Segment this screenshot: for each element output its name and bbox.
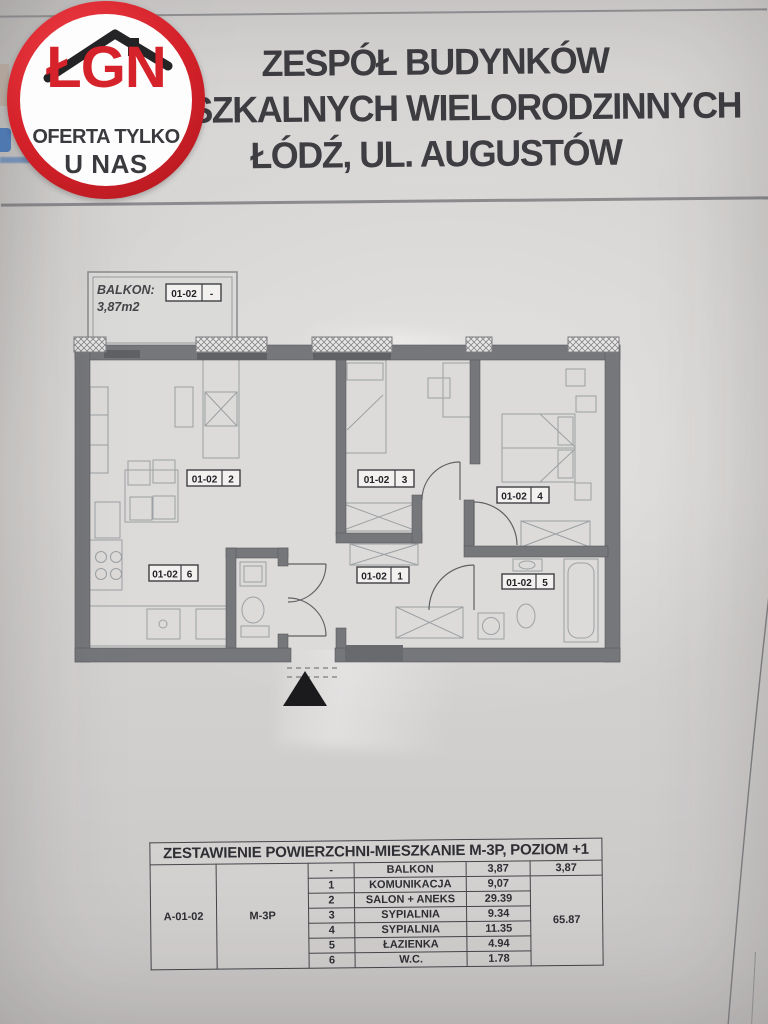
row-name: SYPIALNIA bbox=[355, 922, 467, 938]
svg-text:4: 4 bbox=[537, 492, 543, 503]
room-label-balcony: 01-02 - bbox=[166, 284, 221, 301]
balcony-total-cell: 3,87 bbox=[530, 860, 602, 876]
svg-text:01-02: 01-02 bbox=[171, 289, 197, 300]
floor-plan-drawing: BALKON: 3,87m2 bbox=[55, 245, 640, 720]
row-name: SALON + ANEKS bbox=[354, 892, 466, 908]
row-area: 1.78 bbox=[467, 951, 531, 967]
living-total-cell: 65.87 bbox=[530, 875, 603, 966]
header-title-line2: MIESZKALNYCH WIELORODZINNYCH bbox=[115, 84, 757, 132]
row-area: 9.34 bbox=[467, 906, 531, 922]
svg-text:01-02: 01-02 bbox=[361, 572, 387, 583]
room-label-corridor: 01-02 1 bbox=[357, 567, 409, 583]
row-area: 9,07 bbox=[466, 876, 530, 892]
row-no: - bbox=[308, 863, 354, 878]
photographed-floor-plan-page: ZESPÓŁ BUDYNKÓW MIESZKALNYCH WIELORODZIN… bbox=[0, 0, 768, 1024]
logo-brand-text: ŁGN bbox=[20, 38, 192, 98]
svg-text:01-02: 01-02 bbox=[506, 578, 532, 589]
row-name: W.C. bbox=[355, 952, 467, 968]
row-area: 4.94 bbox=[467, 936, 531, 952]
balcony-area: 3,87m2 bbox=[97, 300, 139, 314]
room-label-wc: 01-02 6 bbox=[149, 565, 198, 581]
row-no: 6 bbox=[309, 953, 355, 968]
svg-text:1: 1 bbox=[397, 572, 403, 583]
svg-text:-: - bbox=[210, 289, 213, 300]
underlying-logo-fragment bbox=[0, 128, 11, 152]
svg-text:2: 2 bbox=[228, 475, 234, 486]
header-title-line3: ŁÓDŹ, UL. AUGUSTÓW bbox=[115, 130, 757, 178]
area-summary-table: ZESTAWIENIE POWIERZCHNI-MIESZKANIE M-3P,… bbox=[149, 838, 603, 971]
floor-plan-svg: BALKON: 3,87m2 bbox=[55, 245, 640, 720]
row-area: 11.35 bbox=[467, 921, 531, 937]
unit-id-cell: A-01-02 bbox=[150, 864, 217, 970]
agency-logo-badge: ŁGN OFERTA TYLKO U NAS bbox=[7, 1, 205, 199]
svg-text:01-02: 01-02 bbox=[501, 492, 527, 503]
room-label-bedroom3: 01-02 3 bbox=[358, 470, 414, 487]
row-no: 2 bbox=[308, 893, 354, 908]
row-no: 4 bbox=[309, 923, 355, 938]
row-no: 5 bbox=[309, 938, 355, 953]
balcony-label: BALKON: bbox=[97, 283, 155, 297]
row-no: 1 bbox=[308, 878, 354, 893]
room-label-bedroom4: 01-02 4 bbox=[497, 487, 549, 503]
row-name: ŁAZIENKA bbox=[355, 937, 467, 953]
row-no: 3 bbox=[309, 908, 355, 923]
room-label-salon: 01-02 2 bbox=[187, 470, 240, 486]
row-name: KOMUNIKACJA bbox=[354, 877, 466, 893]
logo-inner-circle: ŁGN OFERTA TYLKO U NAS bbox=[20, 14, 192, 186]
row-name: BALKON bbox=[354, 862, 466, 878]
logo-tagline-line1: OFERTA TYLKO bbox=[20, 126, 192, 149]
logo-tagline-line2: U NAS bbox=[20, 149, 192, 180]
svg-text:01-02: 01-02 bbox=[192, 475, 218, 486]
row-name: SYPIALNIA bbox=[355, 907, 467, 923]
row-area: 29.39 bbox=[466, 891, 530, 907]
svg-text:6: 6 bbox=[187, 570, 193, 581]
room-label-bathroom: 01-02 5 bbox=[502, 574, 554, 589]
apartment-type-cell: M-3P bbox=[216, 863, 309, 969]
svg-text:01-02: 01-02 bbox=[364, 475, 390, 486]
header-title-line1: ZESPÓŁ BUDYNKÓW bbox=[114, 38, 756, 86]
svg-text:01-02: 01-02 bbox=[152, 570, 178, 581]
entrance-marker-triangle bbox=[283, 671, 327, 706]
svg-text:5: 5 bbox=[542, 578, 548, 589]
row-area: 3,87 bbox=[466, 861, 530, 877]
svg-text:3: 3 bbox=[402, 475, 408, 486]
